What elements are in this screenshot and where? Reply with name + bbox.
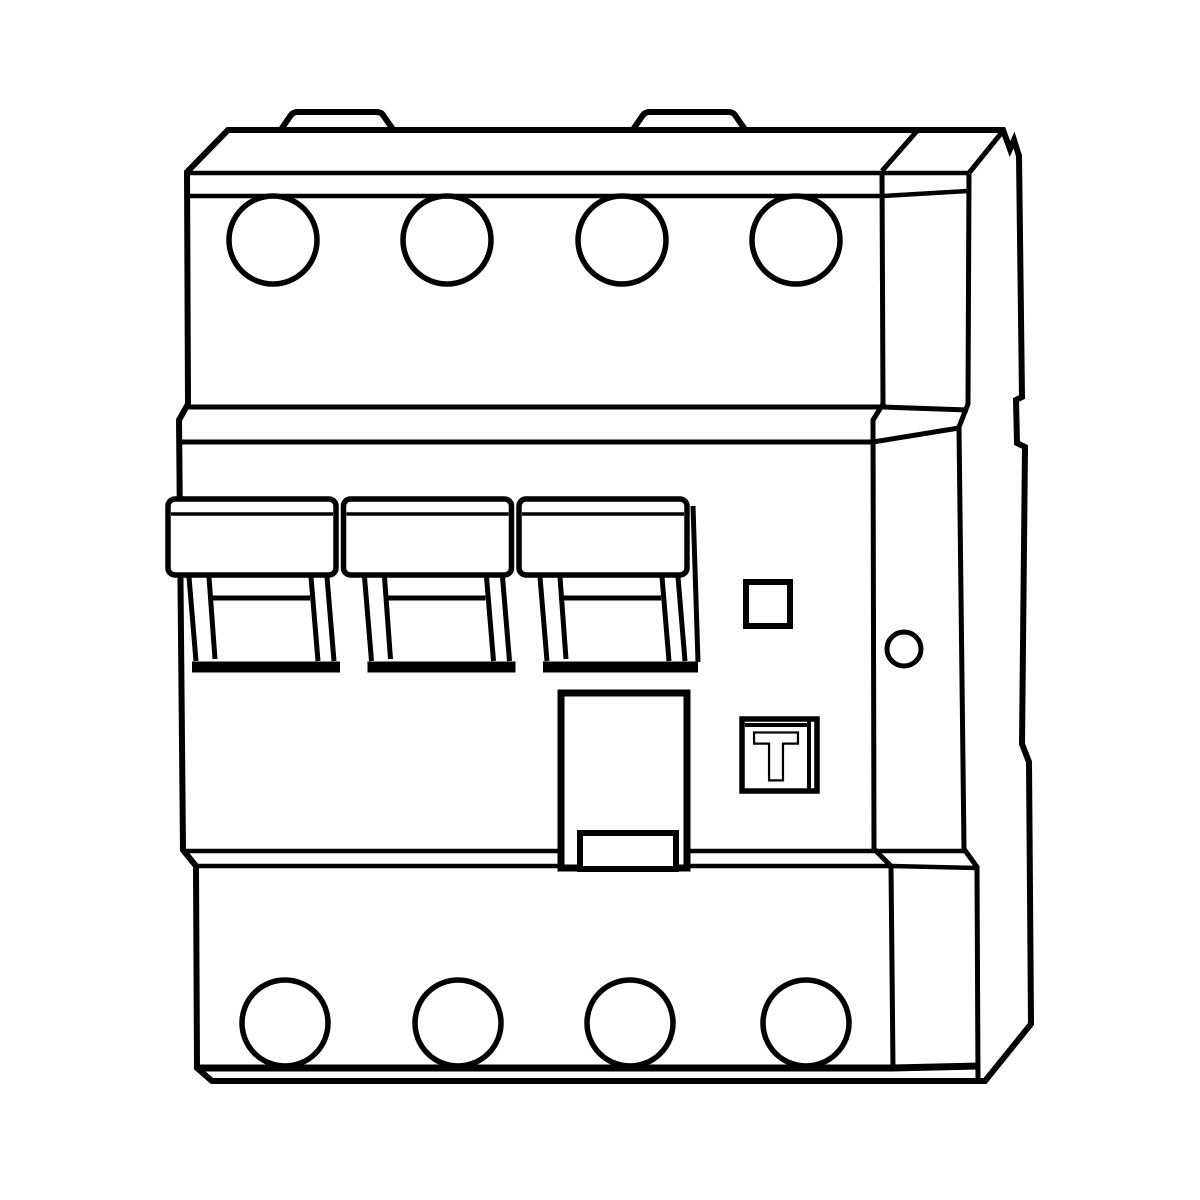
terminal-screw-bottom-1 [242, 980, 328, 1066]
rcd-breaker-line-drawing: T [0, 0, 1200, 1200]
lever-cap [519, 499, 687, 575]
indicator-window [746, 582, 790, 626]
lever-cap [344, 499, 512, 575]
terminal-screw-bottom-2 [415, 980, 501, 1066]
test-button: T [742, 719, 817, 794]
label-window-tab [580, 833, 676, 869]
terminal-screw-bottom-4 [763, 980, 849, 1066]
bottom-edge [197, 1066, 979, 1068]
terminal-screw-top-2 [403, 196, 491, 284]
lever-cap [168, 499, 336, 575]
terminal-screw-top-1 [229, 196, 317, 284]
side-face-hole [887, 632, 921, 666]
terminal-screw-top-3 [578, 196, 666, 284]
terminal-screw-top-4 [752, 196, 840, 284]
technical-drawing-page: T [0, 0, 1200, 1200]
test-button-label: T [755, 721, 797, 794]
terminal-screw-bottom-3 [587, 980, 673, 1066]
